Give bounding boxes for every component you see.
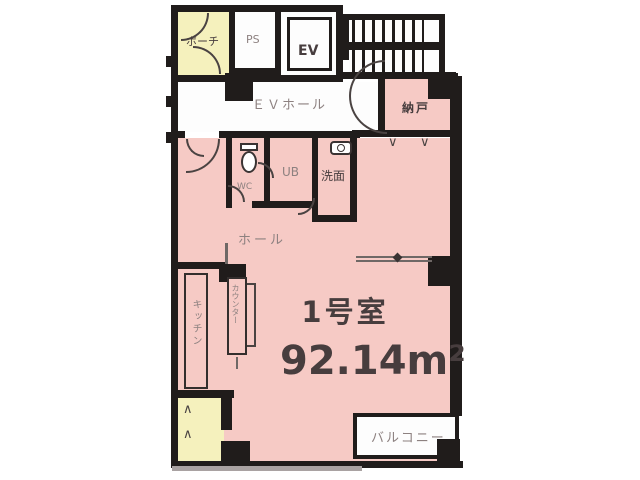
toilet-icon — [240, 143, 258, 151]
wall — [171, 75, 343, 82]
shadow-line — [172, 466, 362, 471]
wall — [275, 5, 281, 75]
kitchen-label: キッチン — [190, 299, 200, 347]
hatch-mark: ∧ — [183, 403, 193, 416]
stairs-landing-bar — [343, 42, 443, 50]
pillar — [225, 73, 253, 101]
ev-hall-label: ＥＶホール — [252, 99, 327, 112]
pillar — [221, 441, 250, 466]
floor-plan: キッチン カウンター ∨ ∨ ∧ ∧ バルコニー ポーチ PS EV ＥＶホール… — [0, 0, 640, 480]
wall — [343, 14, 349, 60]
folding-door-mark: ∨ — [388, 136, 398, 149]
wall — [219, 131, 360, 138]
kitchen-counter: キッチン — [184, 273, 208, 389]
toilet-label: WC — [237, 183, 252, 192]
pillar — [428, 256, 456, 286]
wall — [336, 5, 343, 82]
counter-tick — [236, 357, 238, 369]
wall — [439, 14, 445, 78]
washroom-label: 洗面 — [321, 170, 345, 182]
wall — [221, 397, 232, 430]
toilet-icon — [241, 151, 257, 173]
pillar — [428, 73, 458, 99]
wall — [343, 14, 445, 20]
storage-label: 納戸 — [402, 102, 430, 114]
balcony-label: バルコニー — [371, 432, 446, 445]
wall — [312, 215, 357, 222]
wall — [171, 5, 343, 12]
pipe-space-label: PS — [246, 34, 260, 45]
counter: カウンター — [227, 277, 247, 355]
sink-icon — [337, 144, 345, 152]
porch-label: ポーチ — [186, 36, 219, 47]
counter-label: カウンター — [231, 284, 239, 324]
wall — [352, 130, 456, 137]
wall — [229, 5, 235, 77]
hatch-mark: ∧ — [183, 428, 193, 441]
thin-wall-line — [225, 243, 228, 264]
unit-area-label: 92.14m² — [280, 338, 435, 384]
folding-door-mark: ∨ — [420, 136, 430, 149]
hall-label: ホール — [238, 234, 286, 247]
pillar — [437, 439, 460, 462]
unit-name-label: 1号室 — [295, 289, 395, 331]
elevator-label: EV — [298, 44, 318, 58]
wall-nub — [166, 56, 176, 67]
wall-nub — [166, 132, 176, 143]
wall-nub — [166, 96, 176, 107]
unit-bath-label: UB — [282, 166, 299, 178]
